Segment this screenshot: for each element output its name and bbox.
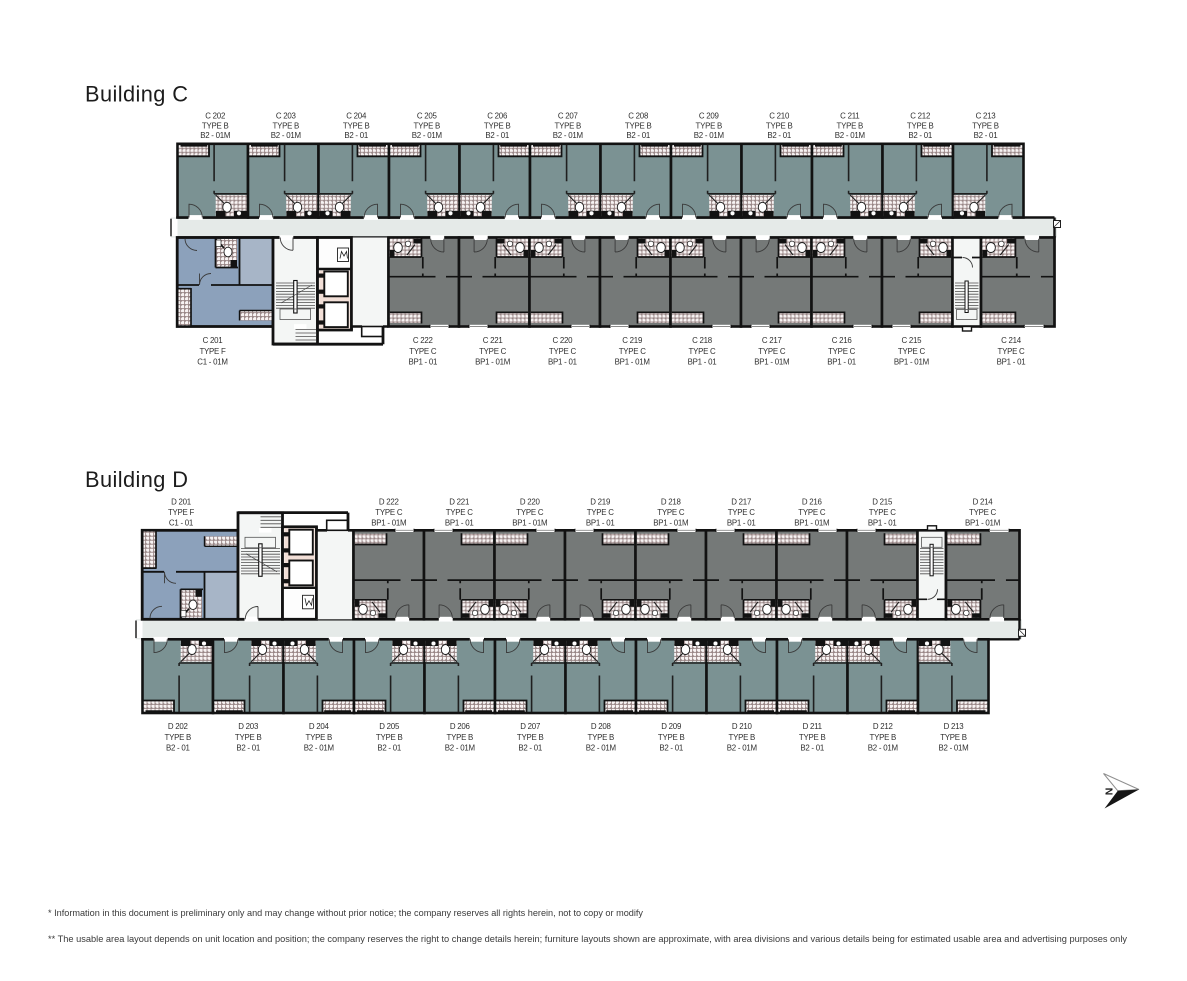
svg-text:C 217: C 217 — [762, 336, 782, 345]
svg-text:TYPE B: TYPE B — [517, 733, 544, 742]
svg-text:C 210: C 210 — [769, 111, 790, 120]
svg-text:TYPE B: TYPE B — [658, 733, 685, 742]
svg-text:D 203: D 203 — [238, 722, 259, 731]
svg-text:D 222: D 222 — [379, 497, 399, 506]
svg-text:B2 - 01M: B2 - 01M — [271, 131, 301, 140]
svg-text:B2 - 01: B2 - 01 — [485, 131, 509, 140]
svg-text:TYPE F: TYPE F — [199, 347, 226, 356]
svg-text:B2 - 01M: B2 - 01M — [553, 131, 583, 140]
svg-text:TYPE B: TYPE B — [376, 733, 403, 742]
svg-text:D 208: D 208 — [591, 722, 612, 731]
svg-text:C 203: C 203 — [276, 111, 297, 120]
svg-text:D 204: D 204 — [309, 722, 330, 731]
svg-text:TYPE B: TYPE B — [588, 733, 615, 742]
svg-text:TYPE C: TYPE C — [479, 347, 507, 356]
svg-text:C 220: C 220 — [552, 336, 573, 345]
svg-text:N: N — [1104, 788, 1116, 796]
svg-text:TYPE B: TYPE B — [940, 733, 967, 742]
svg-text:TYPE C: TYPE C — [409, 347, 437, 356]
svg-text:TYPE B: TYPE B — [343, 121, 370, 130]
svg-text:D 206: D 206 — [450, 722, 471, 731]
svg-text:C 205: C 205 — [417, 111, 438, 120]
svg-text:TYPE B: TYPE B — [799, 733, 826, 742]
svg-text:C 215: C 215 — [901, 336, 922, 345]
svg-text:TYPE C: TYPE C — [549, 347, 577, 356]
svg-text:TYPE B: TYPE B — [972, 121, 999, 130]
svg-text:C 218: C 218 — [692, 336, 713, 345]
svg-text:D 205: D 205 — [379, 722, 400, 731]
svg-text:B2 - 01: B2 - 01 — [800, 743, 824, 752]
svg-text:TYPE C: TYPE C — [869, 508, 897, 517]
svg-text:D 211: D 211 — [803, 722, 822, 731]
svg-text:TYPE C: TYPE C — [998, 347, 1026, 356]
svg-text:B2 - 01M: B2 - 01M — [200, 131, 230, 140]
svg-text:TYPE B: TYPE B — [165, 733, 192, 742]
svg-text:B2 - 01: B2 - 01 — [166, 743, 190, 752]
svg-text:C 216: C 216 — [832, 336, 853, 345]
svg-text:B2 - 01M: B2 - 01M — [727, 743, 757, 752]
svg-text:C1 - 01: C1 - 01 — [169, 519, 193, 528]
svg-text:TYPE C: TYPE C — [758, 347, 786, 356]
svg-text:D 209: D 209 — [661, 722, 682, 731]
svg-text:B2 - 01M: B2 - 01M — [694, 131, 724, 140]
svg-text:D 201: D 201 — [171, 497, 191, 506]
svg-text:C 211: C 211 — [840, 111, 859, 120]
svg-text:Building C: Building C — [85, 82, 188, 107]
svg-text:TYPE C: TYPE C — [898, 347, 926, 356]
svg-text:TYPE B: TYPE B — [202, 121, 229, 130]
svg-text:D 212: D 212 — [873, 722, 893, 731]
svg-text:B2 - 01: B2 - 01 — [974, 131, 998, 140]
svg-text:C 207: C 207 — [558, 111, 578, 120]
svg-text:B2 - 01: B2 - 01 — [626, 131, 650, 140]
svg-text:B2 - 01M: B2 - 01M — [868, 743, 898, 752]
svg-text:D 221: D 221 — [449, 497, 469, 506]
svg-text:TYPE B: TYPE B — [907, 121, 934, 130]
svg-text:BP1 - 01M: BP1 - 01M — [653, 519, 688, 528]
svg-text:TYPE B: TYPE B — [766, 121, 793, 130]
svg-text:B2 - 01M: B2 - 01M — [412, 131, 442, 140]
svg-text:C 212: C 212 — [910, 111, 930, 120]
svg-text:TYPE B: TYPE B — [306, 733, 333, 742]
svg-text:C 219: C 219 — [622, 336, 643, 345]
svg-text:D 215: D 215 — [872, 497, 893, 506]
svg-text:C 202: C 202 — [205, 111, 225, 120]
svg-text:Building D: Building D — [85, 467, 188, 492]
svg-text:TYPE C: TYPE C — [828, 347, 856, 356]
svg-text:D 218: D 218 — [661, 497, 682, 506]
svg-text:TYPE C: TYPE C — [969, 508, 997, 517]
svg-text:BP1 - 01M: BP1 - 01M — [794, 519, 829, 528]
svg-text:B2 - 01M: B2 - 01M — [586, 743, 616, 752]
svg-text:D 202: D 202 — [168, 722, 188, 731]
svg-text:TYPE B: TYPE B — [273, 121, 300, 130]
svg-text:TYPE B: TYPE B — [625, 121, 652, 130]
svg-text:TYPE B: TYPE B — [696, 121, 723, 130]
svg-text:BP1 - 01: BP1 - 01 — [997, 357, 1026, 366]
svg-text:B2 - 01M: B2 - 01M — [835, 131, 865, 140]
svg-text:C 221: C 221 — [483, 336, 503, 345]
svg-text:B2 - 01M: B2 - 01M — [304, 743, 334, 752]
svg-text:TYPE C: TYPE C — [446, 508, 474, 517]
svg-text:D 214: D 214 — [973, 497, 994, 506]
svg-text:TYPE B: TYPE B — [729, 733, 756, 742]
svg-text:TYPE B: TYPE B — [235, 733, 262, 742]
svg-text:C 206: C 206 — [487, 111, 508, 120]
svg-text:C 222: C 222 — [413, 336, 433, 345]
svg-text:D 217: D 217 — [731, 497, 751, 506]
svg-text:C1 - 01M: C1 - 01M — [197, 357, 227, 366]
svg-text:BP1 - 01M: BP1 - 01M — [965, 519, 1000, 528]
svg-text:D 207: D 207 — [520, 722, 540, 731]
svg-text:BP1 - 01M: BP1 - 01M — [615, 357, 650, 366]
svg-text:TYPE C: TYPE C — [728, 508, 756, 517]
svg-text:TYPE B: TYPE B — [837, 121, 864, 130]
svg-text:BP1 - 01: BP1 - 01 — [445, 519, 474, 528]
svg-text:B2 - 01: B2 - 01 — [377, 743, 401, 752]
svg-text:B2 - 01: B2 - 01 — [767, 131, 791, 140]
svg-text:D 219: D 219 — [590, 497, 611, 506]
svg-text:TYPE C: TYPE C — [375, 508, 403, 517]
svg-text:TYPE C: TYPE C — [798, 508, 826, 517]
svg-text:TYPE C: TYPE C — [657, 508, 685, 517]
svg-text:TYPE C: TYPE C — [516, 508, 544, 517]
svg-text:TYPE F: TYPE F — [168, 508, 195, 517]
svg-text:BP1 - 01M: BP1 - 01M — [475, 357, 510, 366]
svg-text:BP1 - 01: BP1 - 01 — [868, 519, 897, 528]
svg-text:BP1 - 01M: BP1 - 01M — [894, 357, 929, 366]
svg-text:TYPE C: TYPE C — [619, 347, 647, 356]
svg-text:C 209: C 209 — [699, 111, 720, 120]
svg-text:BP1 - 01M: BP1 - 01M — [512, 519, 547, 528]
svg-text:D 210: D 210 — [732, 722, 753, 731]
svg-text:D 220: D 220 — [520, 497, 541, 506]
svg-text:C 201: C 201 — [203, 336, 223, 345]
svg-text:TYPE B: TYPE B — [555, 121, 582, 130]
svg-text:B2 - 01: B2 - 01 — [236, 743, 260, 752]
svg-text:B2 - 01: B2 - 01 — [908, 131, 932, 140]
svg-text:C 213: C 213 — [976, 111, 997, 120]
svg-text:BP1 - 01: BP1 - 01 — [548, 357, 577, 366]
svg-text:TYPE C: TYPE C — [689, 347, 717, 356]
svg-text:BP1 - 01: BP1 - 01 — [727, 519, 756, 528]
svg-text:TYPE B: TYPE B — [447, 733, 474, 742]
svg-text:C 214: C 214 — [1001, 336, 1022, 345]
svg-text:D 213: D 213 — [944, 722, 965, 731]
svg-text:B2 - 01: B2 - 01 — [518, 743, 542, 752]
svg-text:TYPE B: TYPE B — [484, 121, 511, 130]
svg-text:B2 - 01: B2 - 01 — [344, 131, 368, 140]
svg-text:B2 - 01M: B2 - 01M — [938, 743, 968, 752]
svg-text:** The usable area layout depe: ** The usable area layout depends on uni… — [48, 934, 1127, 944]
svg-text:BP1 - 01: BP1 - 01 — [827, 357, 856, 366]
svg-text:TYPE C: TYPE C — [587, 508, 615, 517]
svg-text:D 216: D 216 — [802, 497, 823, 506]
svg-text:BP1 - 01: BP1 - 01 — [688, 357, 717, 366]
svg-text:BP1 - 01M: BP1 - 01M — [371, 519, 406, 528]
svg-text:C 208: C 208 — [628, 111, 649, 120]
svg-text:BP1 - 01: BP1 - 01 — [586, 519, 615, 528]
svg-text:* Information in this document: * Information in this document is prelim… — [48, 908, 643, 918]
svg-text:BP1 - 01: BP1 - 01 — [408, 357, 437, 366]
svg-text:TYPE B: TYPE B — [870, 733, 897, 742]
svg-text:TYPE B: TYPE B — [414, 121, 441, 130]
svg-text:C 204: C 204 — [346, 111, 367, 120]
svg-text:BP1 - 01M: BP1 - 01M — [754, 357, 789, 366]
svg-text:B2 - 01M: B2 - 01M — [445, 743, 475, 752]
svg-text:B2 - 01: B2 - 01 — [659, 743, 683, 752]
